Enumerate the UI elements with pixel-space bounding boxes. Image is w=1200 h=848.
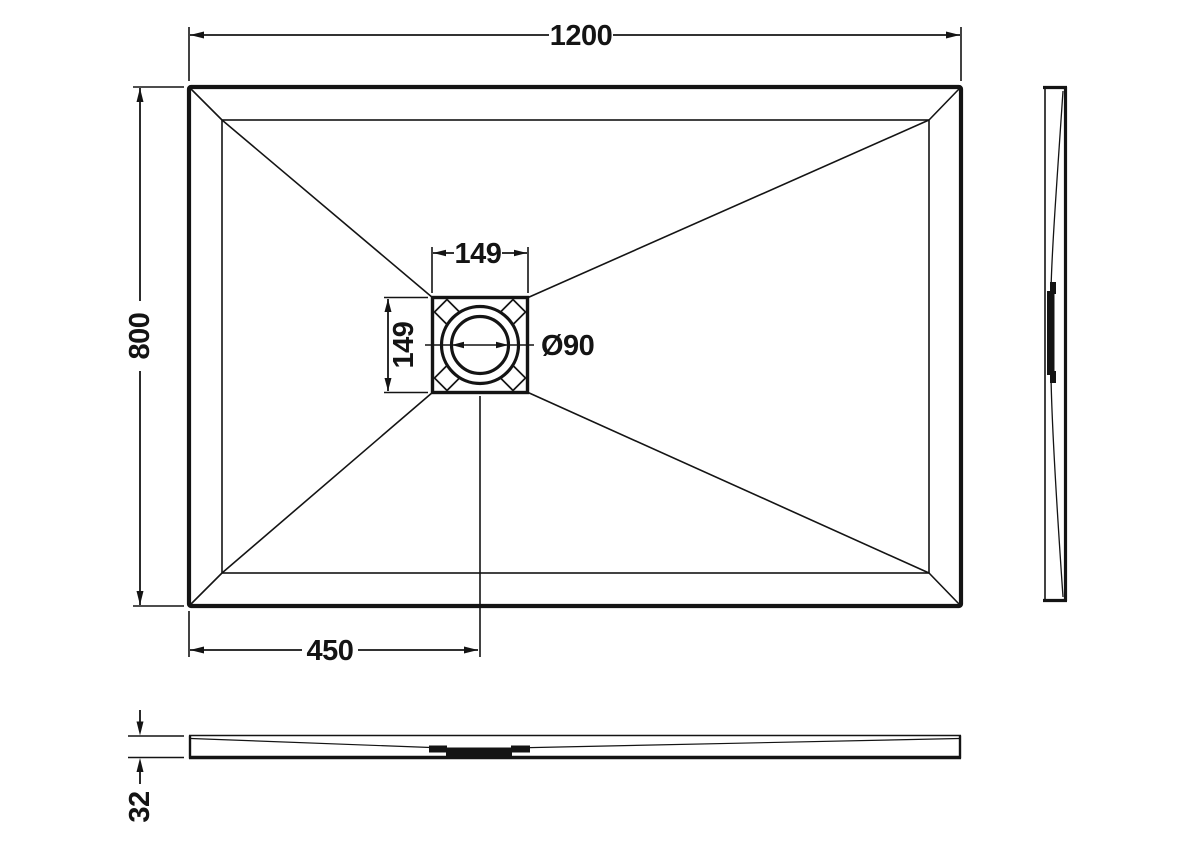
side-waste-step-bottom bbox=[1050, 371, 1056, 383]
dimension-overall-width: 1200 bbox=[189, 20, 961, 81]
dimension-waste-depth: 149 bbox=[384, 298, 428, 393]
front-waste-recess bbox=[446, 748, 512, 758]
side-profile-view bbox=[1043, 87, 1067, 601]
dimension-overall-depth: 800 bbox=[124, 87, 184, 606]
corner-diamond-tl bbox=[435, 300, 460, 325]
front-waste-wing-left bbox=[429, 746, 447, 753]
diameter-arrow-right bbox=[496, 342, 509, 348]
waste-drain bbox=[425, 298, 534, 658]
arrow-up bbox=[137, 758, 144, 772]
front-waste-wing-right bbox=[511, 746, 530, 753]
shower-tray-drawing: 1200 800 149 149 Ø90 450 bbox=[0, 0, 1200, 848]
dim-label-149-width: 149 bbox=[455, 238, 502, 270]
corner-diamond-tr bbox=[501, 300, 526, 325]
corner-diamond-bl bbox=[435, 366, 460, 391]
front-profile-view bbox=[189, 736, 961, 759]
side-waste-step-top bbox=[1050, 282, 1056, 294]
diameter-arrow-left bbox=[452, 342, 465, 348]
side-waste-recess bbox=[1047, 291, 1055, 375]
dimension-waste-width: 149 bbox=[432, 238, 528, 293]
dim-label-800: 800 bbox=[124, 313, 156, 360]
dim-label-149-depth: 149 bbox=[388, 321, 420, 368]
plan-view bbox=[189, 87, 961, 657]
front-slope-left bbox=[191, 739, 444, 749]
dim-label-32: 32 bbox=[124, 791, 156, 822]
arrow-down bbox=[137, 591, 144, 605]
dimension-tray-thickness: 32 bbox=[124, 710, 184, 823]
arrow-left bbox=[433, 250, 446, 256]
arrow-left bbox=[190, 647, 204, 654]
arrow-right bbox=[464, 647, 478, 654]
arrow-up bbox=[137, 88, 144, 102]
arrow-down bbox=[137, 722, 144, 736]
corner-diamond-br bbox=[501, 366, 526, 391]
arrow-right bbox=[514, 250, 527, 256]
arrow-up bbox=[385, 299, 392, 312]
dimension-waste-offset: 450 bbox=[189, 611, 478, 667]
arrow-left bbox=[190, 32, 204, 39]
dim-label-450: 450 bbox=[307, 635, 354, 667]
arrow-right bbox=[946, 32, 960, 39]
arrow-down bbox=[385, 378, 392, 391]
technical-drawing-page: 1200 800 149 149 Ø90 450 bbox=[0, 0, 1200, 848]
front-slope-right bbox=[512, 739, 959, 749]
dim-label-diameter: Ø90 bbox=[541, 330, 594, 362]
dim-label-1200: 1200 bbox=[550, 20, 613, 52]
